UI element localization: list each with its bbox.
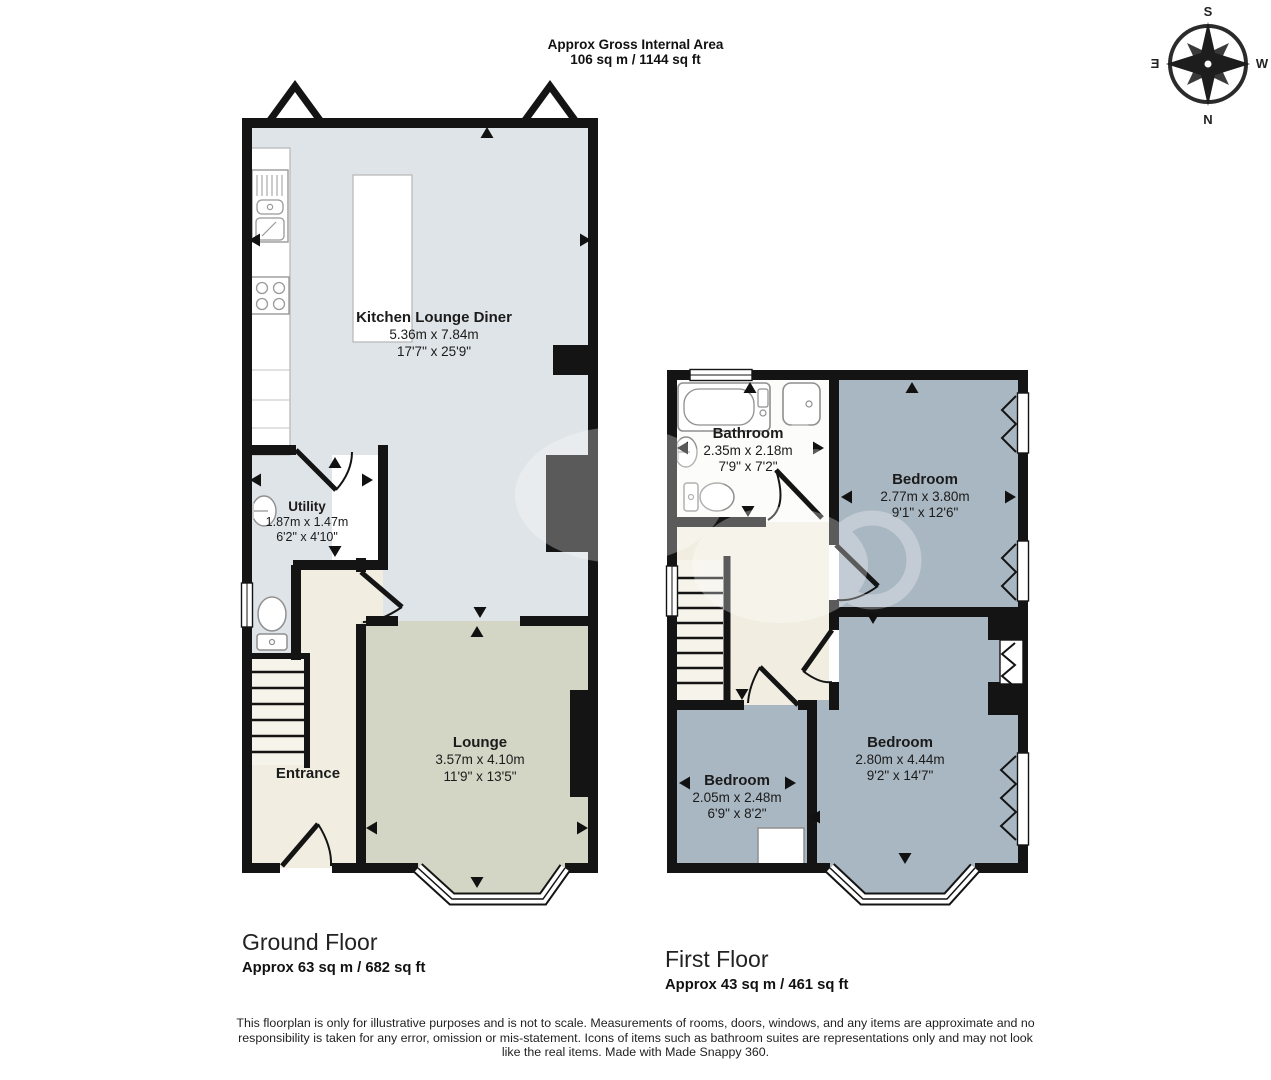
first-floor-area: Approx 43 sq m / 461 sq ft <box>665 977 848 993</box>
entrance-label: Entrance <box>276 765 340 782</box>
first-floor-title: First Floor <box>665 946 848 972</box>
kitchen-label-name: Kitchen Lounge Diner <box>356 309 512 326</box>
bathroom-label-metric: 2.35m x 2.18m <box>703 443 792 458</box>
bedroom-large-label-metric: 2.80m x 4.44m <box>855 752 944 767</box>
bedroom-large-label-imperial: 9'2" x 14'7" <box>867 768 934 783</box>
bedroom-large-label-name: Bedroom <box>867 734 933 751</box>
hob-icon <box>251 277 289 314</box>
lounge-label-name: Lounge <box>453 734 507 751</box>
first-floor-caption: First Floor Approx 43 sq m / 461 sq ft <box>665 946 848 993</box>
ground-floor-windows <box>242 583 253 627</box>
utility-label-imperial: 6'2" x 4'10" <box>276 530 338 544</box>
room-kitchen-extension <box>383 565 593 621</box>
toilet-icon <box>257 597 287 650</box>
disclaimer-text: This floorplan is only for illustrative … <box>230 1016 1042 1060</box>
ground-floor-title: Ground Floor <box>242 929 425 955</box>
floorplan-drawing: Kitchen Lounge Diner 5.36m x 7.84m 17'7"… <box>0 0 1271 1080</box>
bedroom-small-label-name: Bedroom <box>704 772 770 789</box>
shower-icon <box>783 383 820 425</box>
bathroom-label-name: Bathroom <box>713 425 784 442</box>
bedroom-front-label-imperial: 9'1" x 12'6" <box>892 505 959 520</box>
kitchen-sink-icon <box>252 170 288 242</box>
utility-label-name: Utility <box>288 499 326 514</box>
lounge-label-imperial: 11'9" x 13'5" <box>443 769 516 784</box>
lounge-label-metric: 3.57m x 4.10m <box>435 752 524 767</box>
bedroom-small-label-imperial: 6'9" x 8'2" <box>707 806 766 821</box>
bedroom-small-label-metric: 2.05m x 2.48m <box>692 790 781 805</box>
first-floor-plan: Bathroom 2.35m x 2.18m 7'9" x 7'2" Bedro… <box>667 370 1029 900</box>
floorplan-canvas: Approx Gross Internal Area 106 sq m / 11… <box>0 0 1271 1080</box>
utility-label-metric: 1.87m x 1.47m <box>266 515 349 529</box>
bedroom-front-label-metric: 2.77m x 3.80m <box>880 489 969 504</box>
roof-peak-icons <box>268 86 577 123</box>
kitchen-label-metric: 5.36m x 7.84m <box>389 327 478 342</box>
utility-opening <box>332 455 378 560</box>
kitchen-label-imperial: 17'7" x 25'9" <box>397 344 471 359</box>
bathtub-icon <box>678 383 770 431</box>
ground-floor-area: Approx 63 sq m / 682 sq ft <box>242 960 425 976</box>
ground-floor-stairs <box>244 653 308 768</box>
cupboard-icon <box>758 828 804 866</box>
bedroom-front-label-name: Bedroom <box>892 471 958 488</box>
ground-floor-caption: Ground Floor Approx 63 sq m / 682 sq ft <box>242 929 425 976</box>
bathroom-label-imperial: 7'9" x 7'2" <box>718 459 777 474</box>
